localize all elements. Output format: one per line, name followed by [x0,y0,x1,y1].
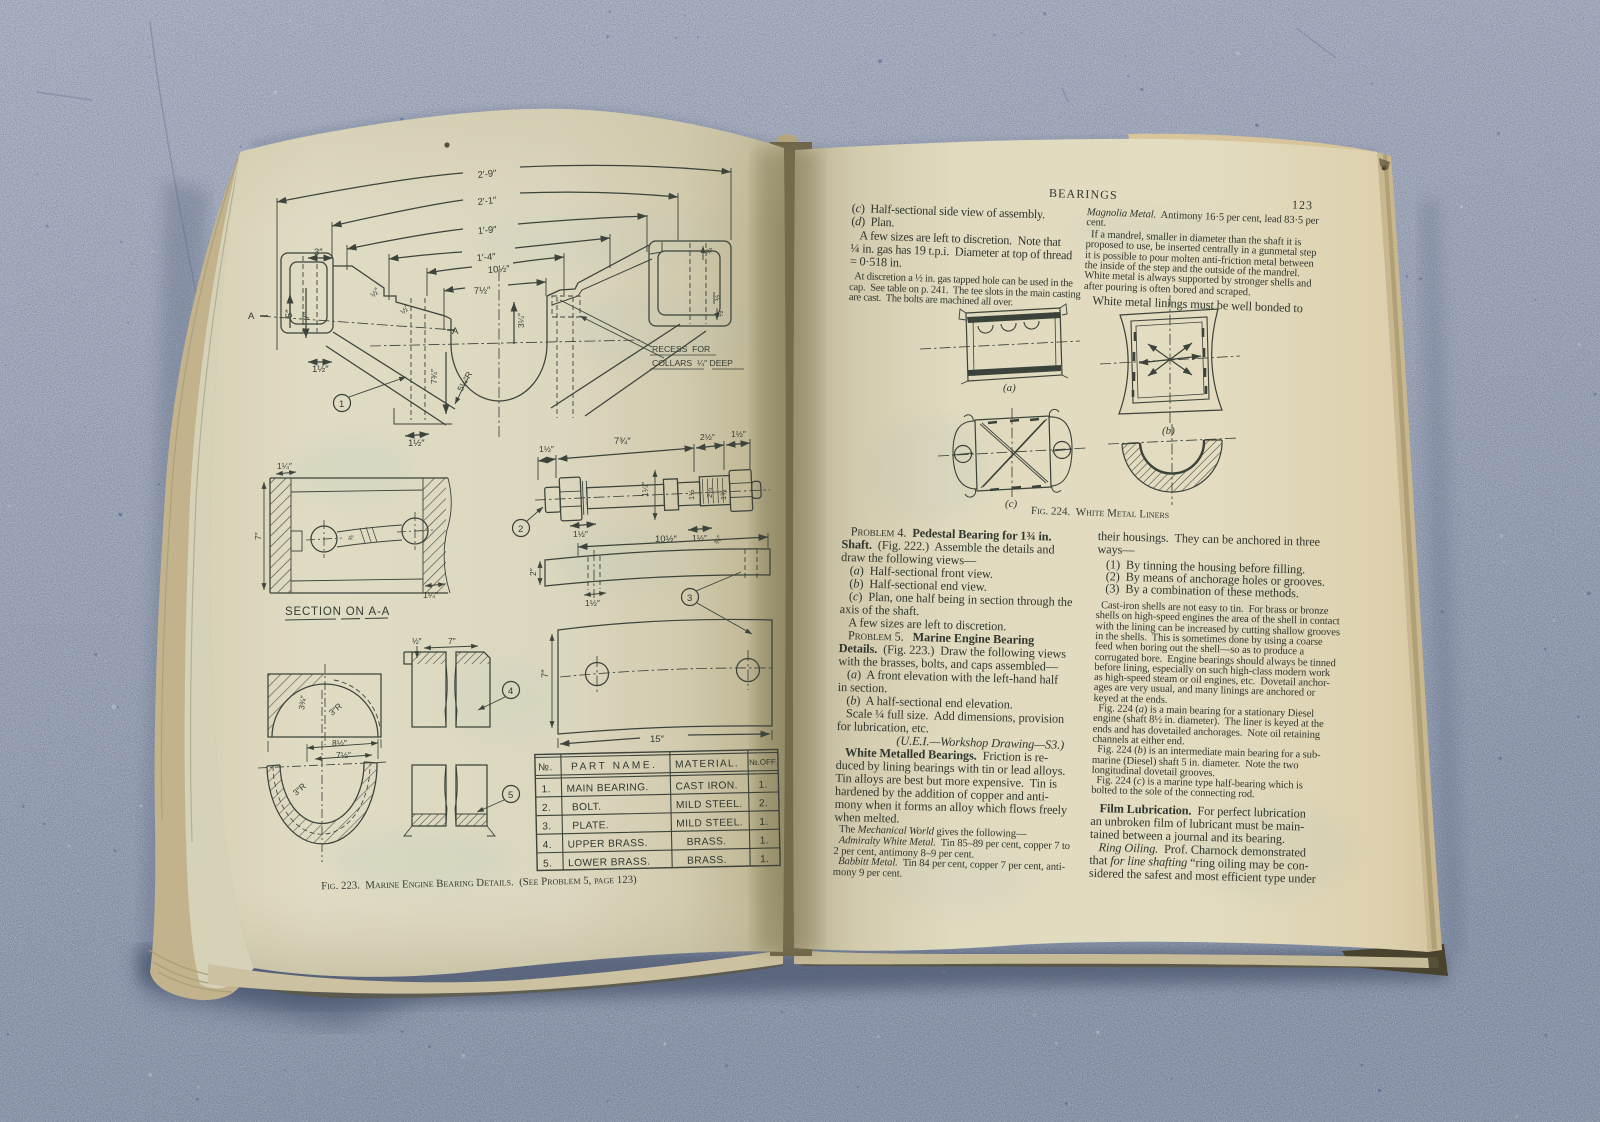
svg-text:15″: 15″ [650,734,665,745]
svg-text:7″: 7″ [253,532,263,540]
svg-text:1½″: 1½″ [573,529,588,539]
svg-text:A: A [248,311,255,322]
svg-text:7″: 7″ [301,311,312,320]
svg-text:7½″: 7½″ [474,285,492,297]
svg-text:½: ½ [716,310,725,317]
svg-text:2′-1″: 2′-1″ [477,195,498,208]
svg-text:½: ½ [713,294,722,301]
svg-text:(c): (c) [1005,498,1018,510]
svg-text:7¾″: 7¾″ [429,369,439,384]
svg-text:1.: 1. [759,817,769,828]
svg-text:1¾: 1¾ [719,489,728,500]
svg-text:BOLT.: BOLT. [572,802,602,814]
svg-text:7″: 7″ [540,669,551,678]
svg-text:(b): (b) [1162,425,1175,437]
svg-text:MILD STEEL.: MILD STEEL. [676,817,743,829]
svg-text:CAST IRON.: CAST IRON. [675,780,738,792]
svg-text:2″: 2″ [528,568,538,576]
svg-text:MATERIAL.: MATERIAL. [675,758,739,770]
svg-text:2.: 2. [542,803,552,814]
svg-text:4: 4 [508,686,513,697]
svg-text:8½″: 8½″ [332,738,347,748]
svg-text:4.: 4. [543,840,553,851]
svg-text:1.: 1. [758,780,768,791]
svg-text:1¼″: 1¼″ [423,590,438,600]
svg-text:RECESS FOR: RECESS FOR [652,344,710,354]
svg-text:MAIN BEARING.: MAIN BEARING. [566,782,648,795]
svg-text:1′-4″: 1′-4″ [476,251,496,264]
svg-text:½″: ½″ [412,637,422,646]
svg-text:3″: 3″ [314,247,323,258]
svg-text:1½″: 1½″ [585,598,600,608]
svg-text:COLLARS ¼″ DEEP: COLLARS ¼″ DEEP [652,358,733,368]
svg-text:1¼″: 1¼″ [640,482,650,497]
svg-text:1½″: 1½″ [408,438,425,449]
svg-text:№.: №. [538,762,553,773]
svg-text:3¼″: 3¼″ [516,313,526,328]
svg-text:(a): (a) [1003,382,1016,394]
svg-text:1′-9″: 1′-9″ [477,224,497,237]
svg-text:2½″: 2½″ [700,432,715,442]
svg-text:1½″: 1½″ [731,429,746,439]
svg-text:1: 1 [339,399,344,410]
svg-text:1.: 1. [760,854,770,865]
svg-text:№.OFF.: №.OFF. [749,757,777,767]
svg-text:7¾″: 7¾″ [614,436,631,447]
svg-text:PLATE.: PLATE. [572,820,609,832]
svg-text:MILD STEEL.: MILD STEEL. [676,799,743,811]
svg-text:1½″: 1½″ [312,364,329,375]
svg-text:1.: 1. [760,835,770,846]
svg-text:1½: 1½ [687,489,696,500]
svg-text:5″: 5″ [284,309,295,318]
svg-text:1.: 1. [541,784,551,795]
svg-text:10½″: 10½″ [655,534,677,545]
svg-text:BRASS.: BRASS. [687,855,727,867]
svg-text:5.: 5. [543,859,553,870]
svg-text:5: 5 [508,790,513,801]
svg-text:7½″: 7½″ [336,750,351,760]
svg-text:SECTION ON A-A: SECTION ON A-A [285,606,390,618]
svg-text:PART NAME.: PART NAME. [571,760,658,773]
svg-text:BRASS.: BRASS. [687,836,727,848]
svg-text:LOWER BRASS.: LOWER BRASS. [568,857,651,870]
svg-text:2′-9″: 2′-9″ [477,168,498,181]
svg-text:1¼″: 1¼″ [277,461,292,471]
svg-text:3: 3 [687,593,692,604]
svg-text:2: 2 [518,524,523,535]
svg-text:2.: 2. [759,798,769,809]
svg-text:1½″: 1½″ [539,444,554,454]
svg-text:3.: 3. [542,821,552,832]
svg-text:A: A [452,326,459,337]
svg-text:¾: ¾ [705,247,714,254]
svg-text:2¼: 2¼ [705,487,714,498]
svg-text:7″: 7″ [448,636,456,646]
svg-text:UPPER BRASS.: UPPER BRASS. [568,838,648,851]
